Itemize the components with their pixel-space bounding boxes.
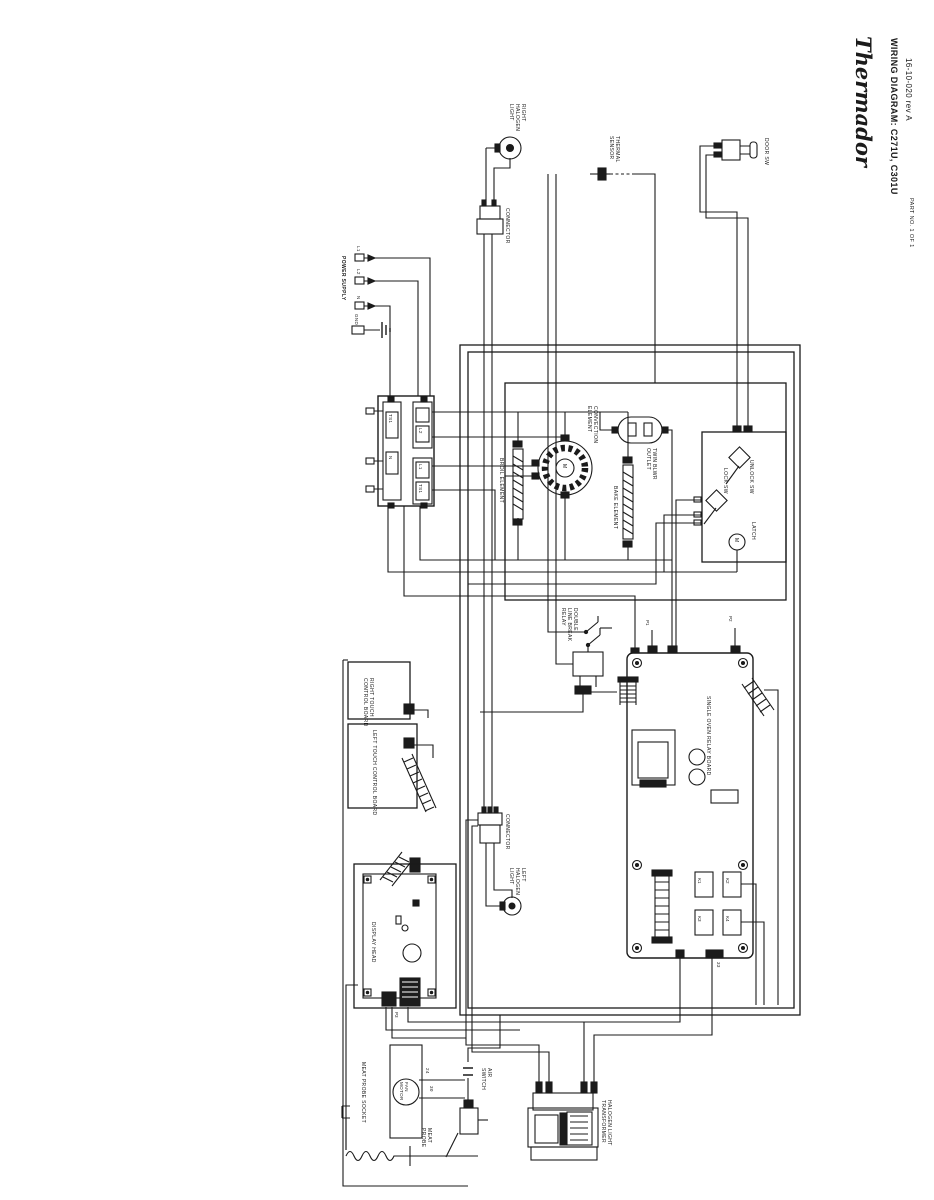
meat-probe-label: MEAT PROBE	[420, 1128, 432, 1148]
schematic-graphics	[0, 0, 934, 1200]
power-supply-symbol	[352, 254, 430, 396]
dlb-relay-label: DOUBLE LINE BREAK RELAY	[560, 608, 578, 641]
relay-p1-ref: P1	[645, 620, 650, 626]
fan-motor-label: FAN MOTOR	[399, 1082, 409, 1101]
air-switch-symbol	[446, 1068, 478, 1157]
right-touch-board-outline	[348, 662, 428, 719]
unlock-switch-label: UNLOCK SW	[748, 460, 754, 494]
power-terminal-gnd: GND	[354, 314, 359, 325]
lock-switch-label: LOCK SW	[722, 468, 728, 494]
latch-label: LATCH	[750, 522, 756, 540]
right-halogen-light-symbol	[495, 137, 521, 159]
mid-connector-label: CONNECTOR	[504, 814, 510, 850]
bake-element	[623, 457, 633, 547]
relay-board-label: SINGLE OVEN RELAY BOARD	[705, 696, 711, 776]
mid-connector-symbol	[478, 807, 502, 843]
terminal-block-ts1	[366, 396, 434, 508]
left-touch-board-label: LEFT TOUCH CONTROL BOARD	[371, 730, 377, 816]
convection-element-label: CONVECTION ELEMENT	[586, 406, 598, 443]
ts1-cell-1: TS1	[388, 414, 393, 423]
halogen-transformer-label: HALOGEN LIGHT TRANSFORMER	[600, 1100, 612, 1146]
ts1-cell-l2: L2	[418, 428, 423, 434]
air-switch-label: AIR SWITCH	[480, 1068, 492, 1090]
relay-p2-ref: P2	[728, 616, 733, 622]
relay-k2-ref: K2	[725, 878, 730, 884]
ts1-cell-l1: L1	[418, 464, 423, 470]
relay-k4-ref: K4	[725, 916, 730, 922]
power-supply-label: POWER SUPPLY	[340, 256, 346, 301]
broil-element	[513, 441, 523, 525]
right-halogen-light-label: RIGHT HALOGEN LIGHT	[508, 104, 526, 131]
right-touch-board-label: RIGHT TOUCH CONTROL BOARD	[362, 678, 374, 727]
top-connector-symbol	[477, 200, 503, 234]
display-p3-ref: P3	[394, 1012, 399, 1018]
thermal-sensor-symbol	[598, 168, 610, 180]
thermal-sensor-label: THERMAL SENSOR	[608, 136, 620, 163]
power-terminal-n: N	[356, 296, 361, 300]
brand-logo: Thermador	[851, 36, 875, 167]
wiring-diagram-sheet: Thermador WIRING DIAGRAM: C271U, C301U 1…	[0, 0, 934, 1200]
left-halogen-light-symbol	[500, 897, 521, 915]
page-note: PART NO. 1 OF 1	[908, 198, 914, 248]
ribbon-cable-touch-to-display	[380, 754, 436, 886]
left-halogen-light-label: LEFT HALOGEN LIGHT	[508, 868, 526, 895]
relay-board-outline	[588, 628, 774, 958]
ts1-cell-2: TS1	[418, 484, 423, 493]
power-terminal-l2: L2	[356, 269, 361, 275]
bake-element-label: BAKE ELEMENT	[612, 486, 618, 529]
meat-probe-socket-label: MEAT PROBE SOCKET	[360, 1062, 366, 1123]
wires-layer	[343, 146, 778, 1186]
top-connector-label: CONNECTOR	[504, 208, 510, 244]
door-switch-symbol	[714, 140, 757, 160]
display-head-label: DISPLAY HEAD	[370, 922, 376, 963]
left-touch-board-outline	[348, 724, 433, 808]
ts1-cell-n: N	[388, 456, 393, 460]
door-switch-label: DOOR SW	[763, 138, 769, 165]
blower-outlet-label: TWIN BLWR OUTLET	[645, 448, 657, 480]
broil-element-label: BROIL ELEMENT	[498, 458, 504, 503]
wire-tag-24: 24	[425, 1068, 430, 1074]
relay-k3-ref: K3	[697, 916, 702, 922]
wire-tag-30: 30	[429, 1086, 434, 1092]
doc-title: WIRING DIAGRAM: C271U, C301U	[888, 38, 899, 195]
latch-motor-symbol: M	[733, 538, 739, 543]
relay-k1-ref: K1	[697, 878, 702, 884]
power-terminal-l1: L1	[356, 246, 361, 252]
doc-number: 16-10-020 rev A	[903, 58, 913, 121]
wire-tag-33: 33	[716, 962, 721, 968]
halogen-transformer-symbol	[528, 1082, 598, 1160]
latch-assembly	[694, 426, 786, 562]
blower-outlet	[612, 417, 668, 443]
convection-motor-symbol: M	[561, 464, 567, 469]
